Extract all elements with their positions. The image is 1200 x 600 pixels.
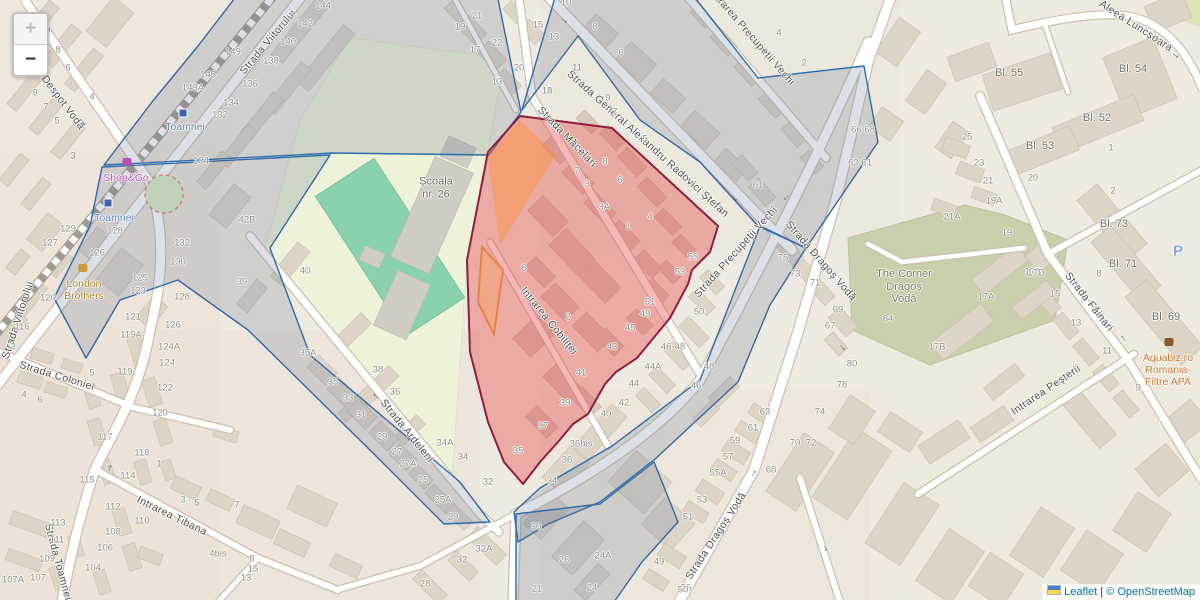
zoom-in-button[interactable]: +: [14, 14, 47, 44]
openstreetmap-link[interactable]: © OpenStreetMap: [1106, 586, 1195, 598]
attribution-divider: |: [1100, 586, 1103, 598]
ukraine-flag-icon: [1047, 585, 1061, 595]
map-viewport[interactable]: Strada Despot VodăStrada ViitoruluiStrad…: [0, 0, 1200, 600]
leaflet-link[interactable]: Leaflet: [1064, 586, 1097, 598]
attribution-bar: Leaflet | © OpenStreetMap: [1042, 584, 1200, 600]
zoom-control: + −: [12, 12, 49, 77]
map-canvas: [0, 0, 1200, 600]
zoom-out-button[interactable]: −: [14, 45, 47, 75]
